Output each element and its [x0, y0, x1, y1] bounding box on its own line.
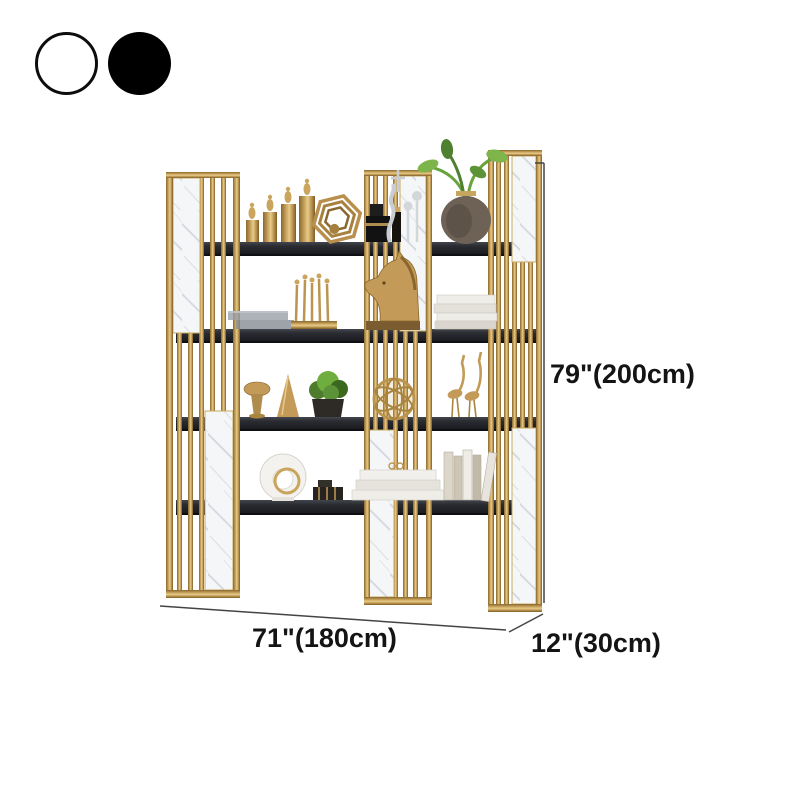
etagere-bookshelf: [166, 138, 542, 612]
decor-gold-goblet: [244, 382, 270, 419]
decor-hexagon-ornament: [309, 193, 366, 245]
decor-patterned-box: [313, 480, 343, 500]
decor-white-book-stack: [434, 295, 497, 329]
height-dimension-label: 79"(200cm): [550, 359, 695, 389]
left-panel: [166, 172, 240, 598]
decor-gold-figurine-cluster: [291, 274, 337, 330]
decor-gold-cone: [277, 374, 299, 417]
decor-ring-vase: [260, 454, 306, 501]
decor-crane-figurines: [447, 352, 481, 417]
decor-openwork-sphere: [373, 379, 416, 419]
decor-standing-books: [444, 450, 497, 502]
depth-dimension-label: 12"(30cm): [531, 628, 661, 658]
product-photo: 79"(200cm) 71"(180cm) 12"(30cm): [0, 0, 800, 800]
width-dimension-label: 71"(180cm): [252, 623, 397, 653]
right-panel: [488, 150, 542, 612]
decor-grey-book-stack: [228, 311, 294, 329]
decor-trophy-steps: [246, 179, 315, 242]
decor-potted-plant: [309, 371, 348, 417]
product-image-canvas: 79"(200cm) 71"(180cm) 12"(30cm): [0, 0, 800, 800]
